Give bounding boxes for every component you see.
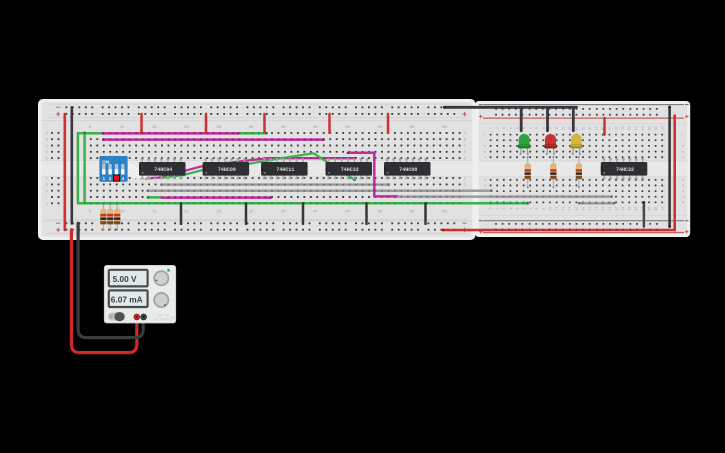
svg-text:20: 20	[614, 207, 618, 211]
svg-text:74HC32: 74HC32	[341, 167, 359, 173]
svg-text:14: 14	[574, 126, 578, 130]
svg-text:3: 3	[502, 208, 506, 210]
svg-text:19: 19	[607, 126, 611, 130]
svg-text:15: 15	[581, 207, 585, 211]
svg-text:24: 24	[640, 126, 644, 130]
svg-text:a: a	[681, 201, 685, 203]
svg-text:d: d	[681, 185, 685, 187]
svg-text:16: 16	[588, 207, 592, 211]
svg-text:22: 22	[627, 126, 631, 130]
svg-text:18: 18	[601, 207, 605, 211]
svg-text:b: b	[681, 196, 685, 198]
svg-text:23: 23	[634, 126, 638, 130]
svg-text:25: 25	[647, 126, 651, 130]
svg-text:15: 15	[581, 126, 585, 130]
svg-text:5.00 V: 5.00 V	[113, 274, 137, 284]
svg-text:j: j	[483, 133, 487, 135]
svg-text:10: 10	[548, 207, 552, 211]
svg-text:16: 16	[588, 126, 592, 130]
svg-text:d: d	[483, 185, 487, 187]
svg-text:74HC11: 74HC11	[276, 167, 294, 173]
svg-text:13: 13	[568, 207, 572, 211]
svg-text:c: c	[681, 190, 685, 192]
svg-text:g: g	[681, 151, 685, 153]
svg-text:26: 26	[654, 207, 658, 211]
svg-text:27: 27	[660, 126, 664, 130]
svg-text:j: j	[681, 133, 685, 135]
svg-text:22: 22	[627, 207, 631, 211]
svg-text:4: 4	[508, 127, 512, 129]
svg-text:2: 2	[495, 127, 499, 129]
svg-text:74HC04: 74HC04	[154, 167, 172, 173]
svg-text:9: 9	[541, 208, 545, 210]
svg-text:7: 7	[528, 127, 532, 129]
svg-text:74HC32: 74HC32	[616, 167, 634, 173]
svg-text:5: 5	[515, 127, 519, 129]
svg-text:20: 20	[614, 126, 618, 130]
svg-text:5: 5	[515, 208, 519, 210]
svg-text:21: 21	[621, 126, 625, 130]
svg-text:1: 1	[489, 208, 493, 210]
svg-text:✎: ✎	[171, 315, 174, 320]
svg-text:6: 6	[522, 208, 526, 210]
svg-text:12: 12	[561, 126, 565, 130]
svg-text:4: 4	[508, 208, 512, 210]
svg-text:11: 11	[555, 126, 559, 130]
svg-text:f: f	[483, 157, 487, 158]
svg-text:26: 26	[654, 126, 658, 130]
svg-text:6.07 mA: 6.07 mA	[111, 294, 143, 304]
svg-text:11: 11	[555, 207, 559, 211]
svg-text:h: h	[483, 145, 487, 147]
svg-text:DC SUPPLY: DC SUPPLY	[154, 317, 173, 321]
svg-text:2: 2	[495, 208, 499, 210]
svg-text:8: 8	[535, 127, 539, 129]
svg-text:13: 13	[568, 126, 572, 130]
svg-text:h: h	[681, 145, 685, 147]
svg-text:f: f	[681, 157, 685, 158]
svg-text:g: g	[483, 151, 487, 153]
svg-text:7: 7	[528, 208, 532, 210]
svg-text:8: 8	[535, 208, 539, 210]
svg-text:9: 9	[541, 127, 545, 129]
svg-text:12: 12	[561, 207, 565, 211]
svg-text:e: e	[681, 179, 685, 181]
svg-text:19: 19	[607, 207, 611, 211]
svg-text:21: 21	[621, 207, 625, 211]
svg-text:27: 27	[660, 207, 664, 211]
svg-text:25: 25	[647, 207, 651, 211]
svg-text:17: 17	[594, 207, 598, 211]
svg-text:17: 17	[594, 126, 598, 130]
svg-text:1: 1	[489, 127, 493, 129]
svg-text:3: 3	[502, 127, 506, 129]
svg-text:74HC08: 74HC08	[399, 167, 417, 173]
svg-text:14: 14	[574, 207, 578, 211]
svg-text:23: 23	[634, 207, 638, 211]
svg-text:74HC08: 74HC08	[218, 167, 236, 173]
svg-text:e: e	[483, 179, 487, 181]
